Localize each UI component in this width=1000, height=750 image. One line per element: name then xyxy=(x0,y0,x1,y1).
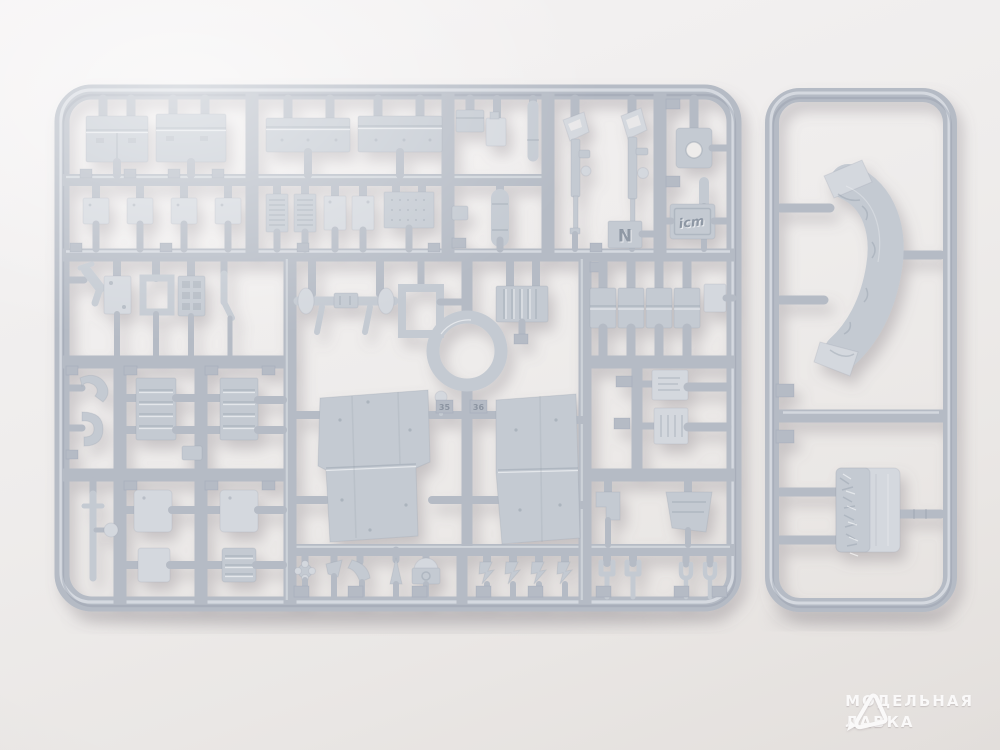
part-number-tag xyxy=(297,243,309,252)
part-number-tag xyxy=(70,243,82,252)
wedge-panel-part xyxy=(666,481,712,545)
bottom-small-parts xyxy=(294,550,727,597)
brand-logo-glyph: icm xyxy=(678,214,705,232)
letter-plate: N N xyxy=(608,221,655,248)
axle-with-wheels-part xyxy=(298,262,394,332)
tag-36: 36 xyxy=(473,403,485,412)
tow-claw-part xyxy=(66,366,108,402)
spare-ring-part xyxy=(433,317,501,385)
part-number-tag xyxy=(666,99,680,109)
part-number-tag xyxy=(776,384,794,397)
angle-bracket-part xyxy=(596,481,620,545)
shop-watermark: МОДЕЛЬНАЯ ЛАВКА xyxy=(845,691,974,735)
tag-35: 35 xyxy=(439,403,451,412)
main-sprue: N N icm icm xyxy=(61,90,735,606)
louvered-panel-part xyxy=(496,262,548,344)
rod-part xyxy=(84,481,118,578)
c-hook-part xyxy=(66,412,103,459)
lever-hook-part xyxy=(69,264,100,303)
stowage-box-parts xyxy=(266,99,442,175)
clamp-block-parts xyxy=(590,262,733,356)
letter-plate-glyph: N xyxy=(618,227,632,247)
radiator-plate-parts xyxy=(266,186,434,249)
rifle-part-1 xyxy=(563,99,591,249)
hole-plate-part xyxy=(104,262,131,356)
textured-bundle-part xyxy=(780,468,941,556)
side-sprue xyxy=(771,93,951,607)
rolled-tarpaulin-part xyxy=(780,160,941,376)
shop-logo-icon xyxy=(845,691,889,733)
toolbox-parts xyxy=(86,99,226,175)
part-number-tag xyxy=(776,430,794,443)
fender-panel-right xyxy=(473,394,585,544)
license-plate-parts xyxy=(614,370,727,444)
part-number-tag xyxy=(590,243,602,252)
open-frame-part xyxy=(143,262,171,356)
thin-lever-part xyxy=(224,262,232,356)
sprue-scene: N N icm icm xyxy=(0,0,1000,750)
part-number-tag xyxy=(428,243,440,252)
bracket-part xyxy=(676,99,727,168)
product-photo: N N icm icm xyxy=(0,0,1000,750)
part-number-tag xyxy=(160,243,172,252)
brand-logo-plate: icm icm xyxy=(666,204,727,239)
grid-plate-part xyxy=(178,262,205,356)
